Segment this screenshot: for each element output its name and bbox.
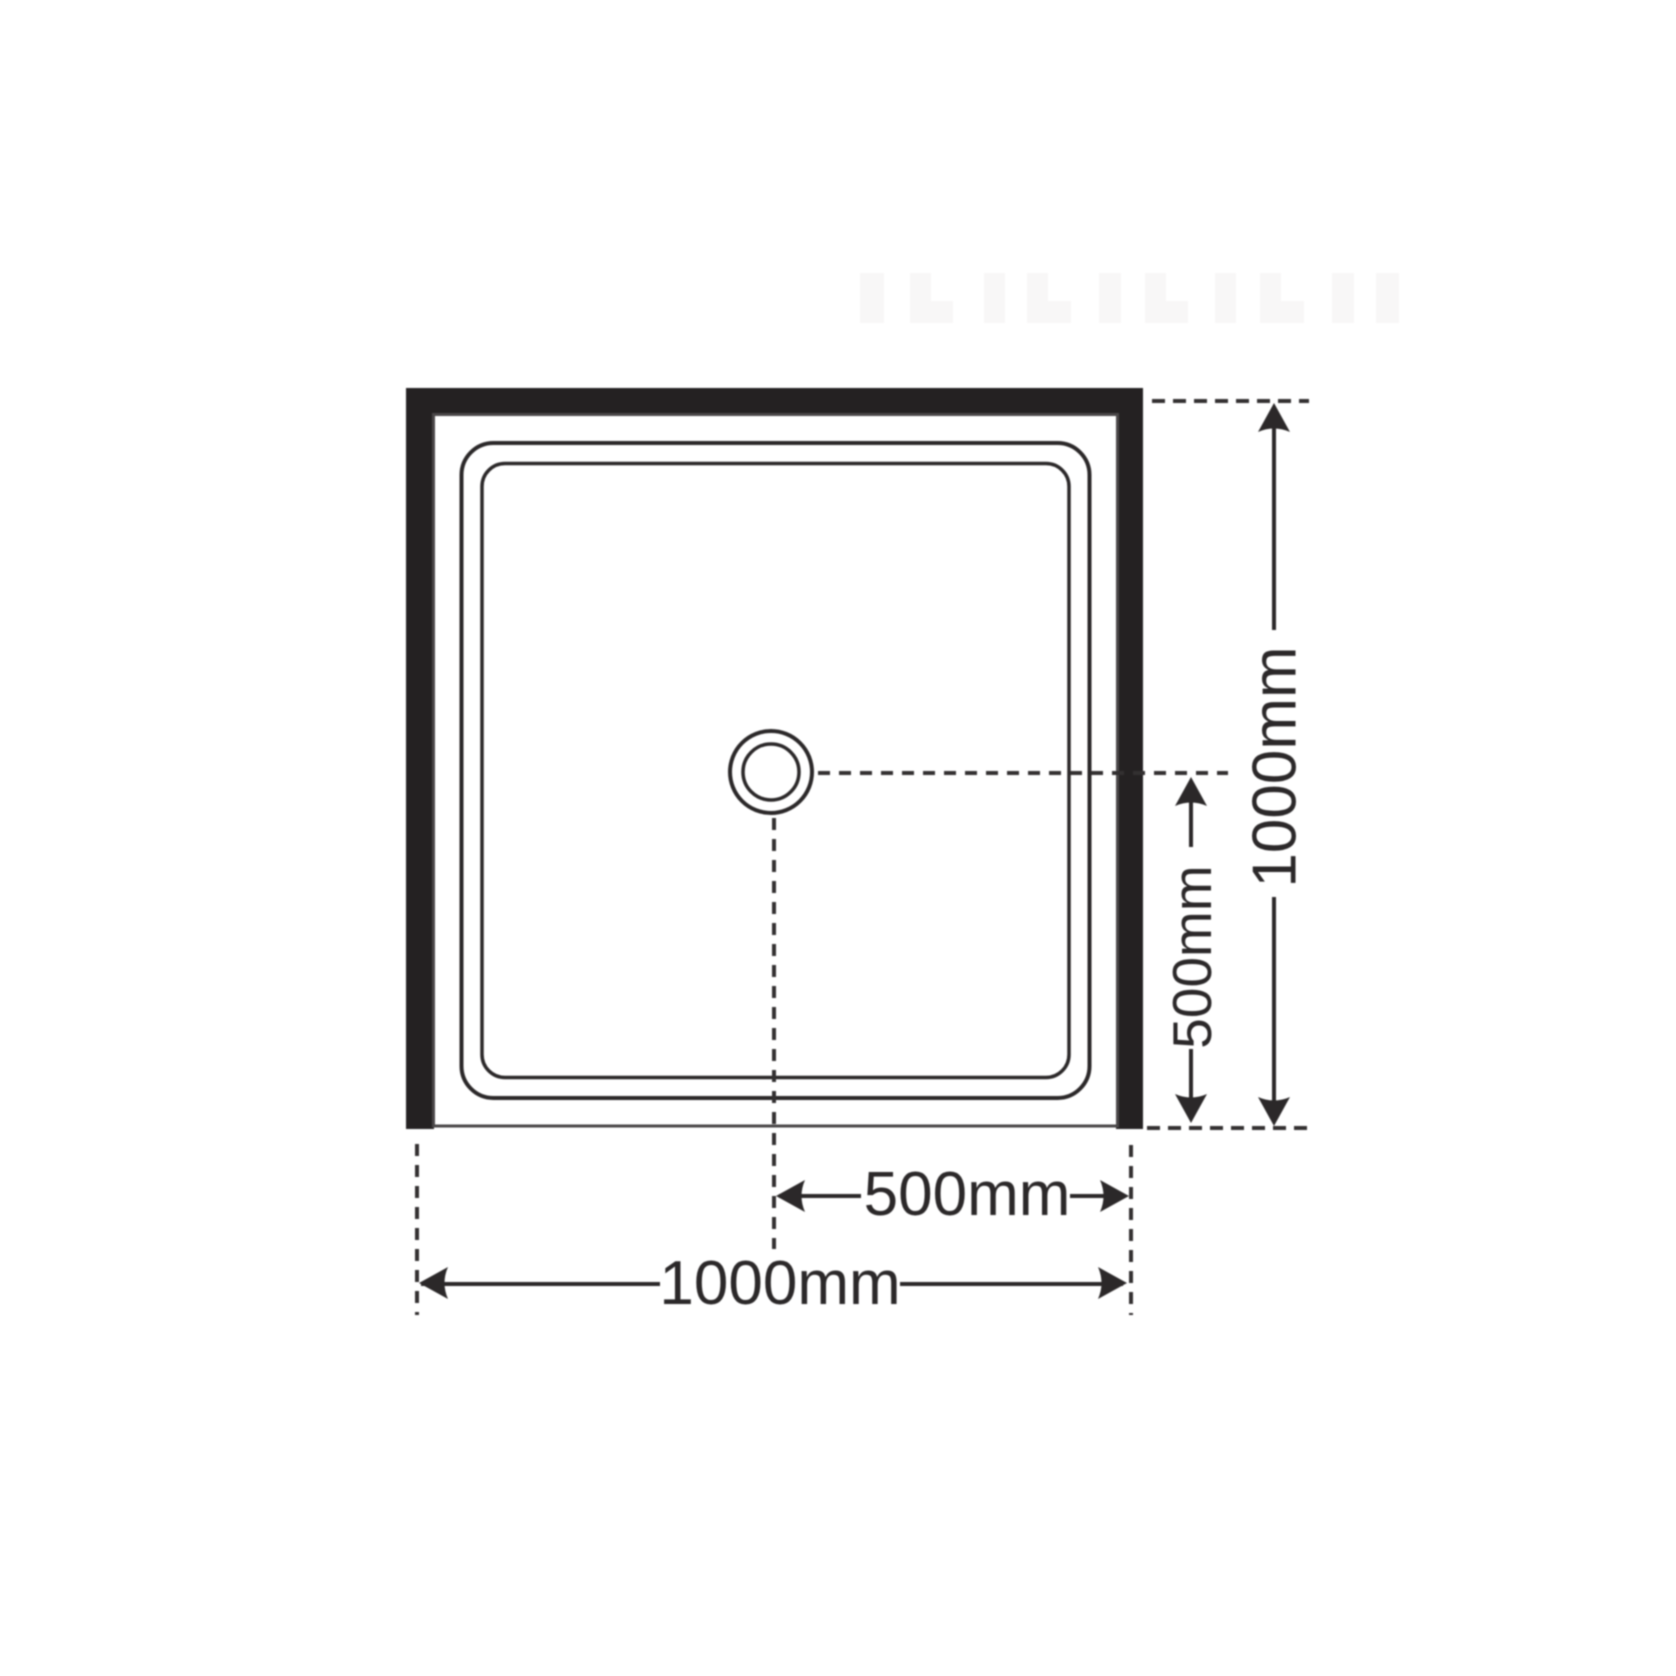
svg-text:500mm: 500mm [864, 1160, 1071, 1229]
svg-text:1000mm: 1000mm [1241, 646, 1310, 887]
svg-text:500mm: 500mm [1161, 865, 1223, 1048]
svg-text:1000mm: 1000mm [659, 1249, 900, 1318]
